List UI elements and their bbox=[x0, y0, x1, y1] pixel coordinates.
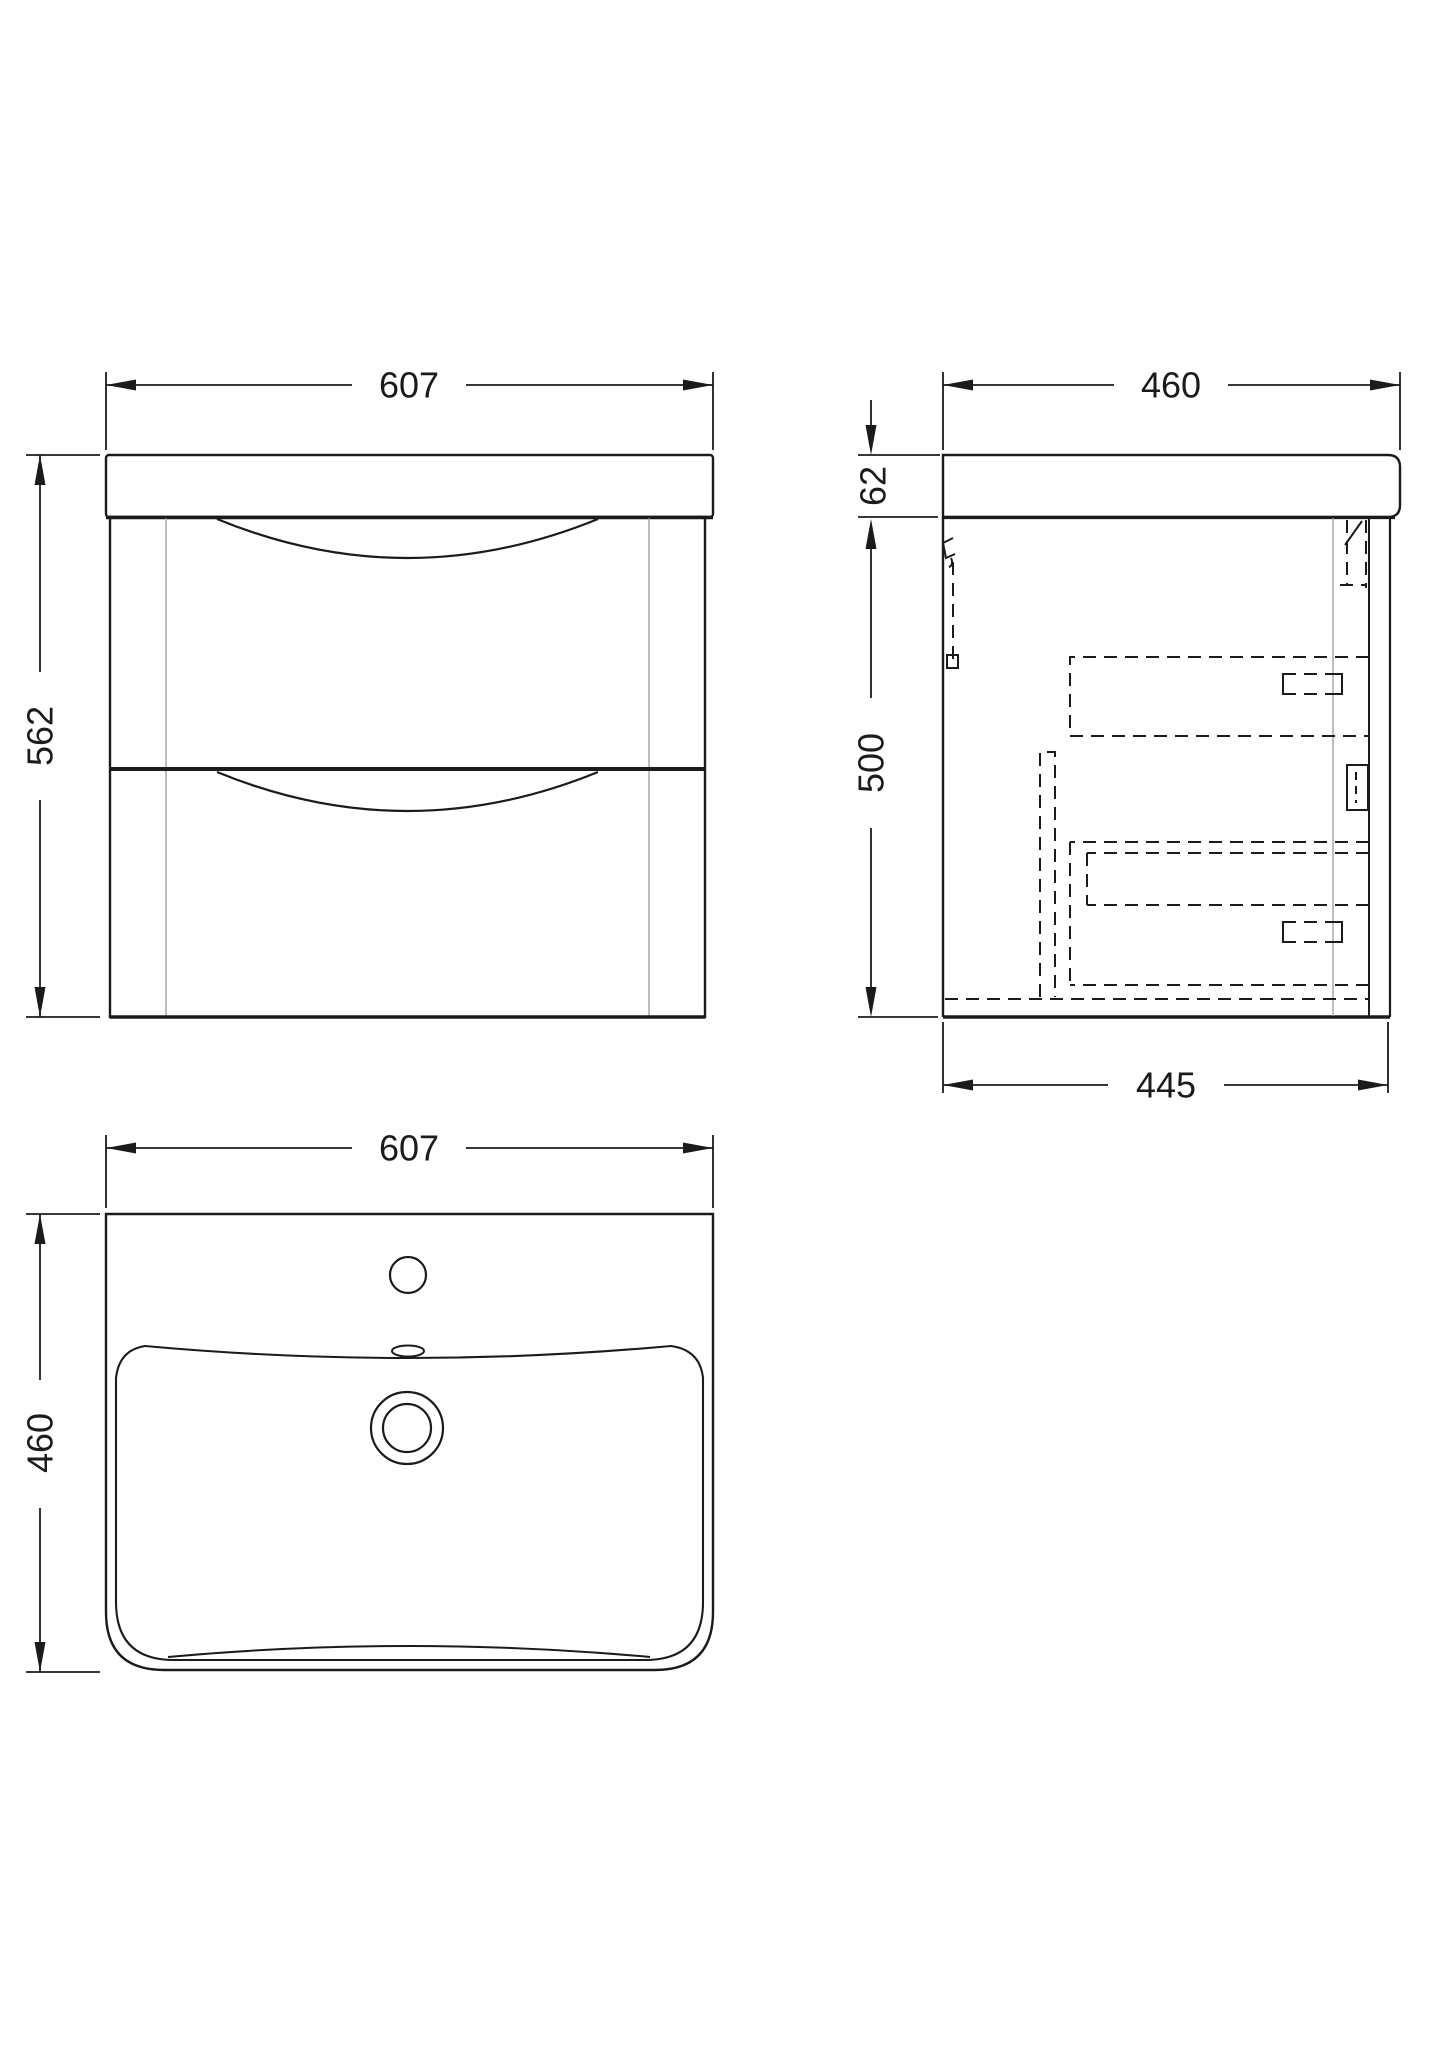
plan-depth-dimension-label: 460 bbox=[20, 1413, 61, 1473]
front-width-dimension-label: 607 bbox=[379, 365, 439, 406]
cabinet-depth-dimension-label: 445 bbox=[1136, 1065, 1196, 1106]
front-height-dimension-label: 562 bbox=[20, 706, 61, 766]
plan-width-dimension-label: 607 bbox=[379, 1128, 439, 1169]
vanity-unit-dimension-drawing: 607 562 bbox=[0, 0, 1445, 2045]
technical-drawing-page: 607 562 bbox=[0, 0, 1445, 2045]
side-mid-bracket bbox=[1347, 765, 1368, 810]
cabinet-height-dimension-label: 500 bbox=[851, 733, 892, 793]
worktop-height-dimension-label: 62 bbox=[853, 466, 894, 506]
drawing-background bbox=[0, 0, 1445, 2045]
side-depth-dimension-label: 460 bbox=[1141, 365, 1201, 406]
